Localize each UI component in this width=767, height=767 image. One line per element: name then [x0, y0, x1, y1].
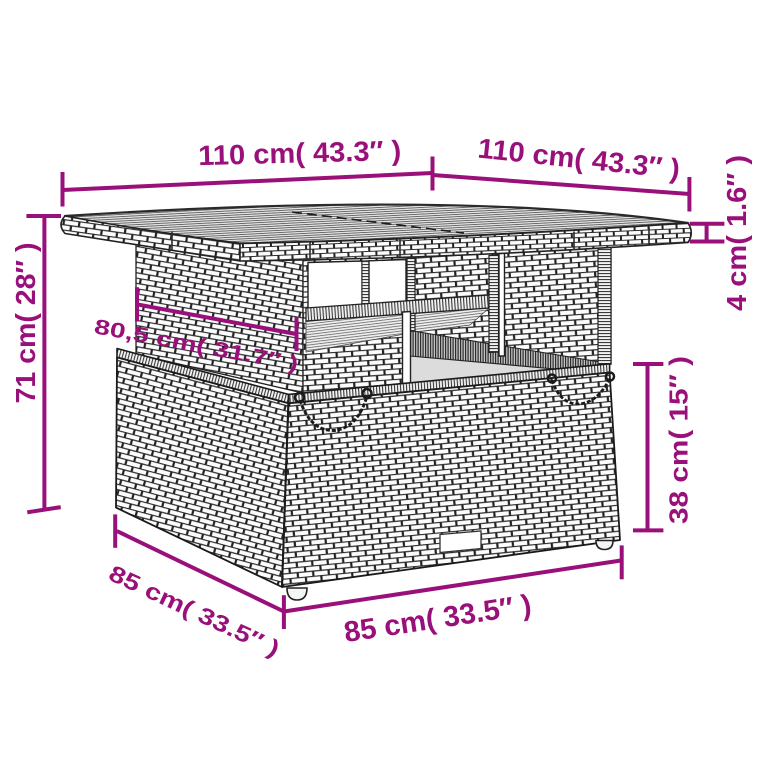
svg-text:38 cm( 15″ ): 38 cm( 15″ ) [664, 356, 694, 524]
svg-text:71 cm( 28″ ): 71 cm( 28″ ) [10, 243, 41, 404]
svg-text:4 cm( 1.6″ ): 4 cm( 1.6″ ) [721, 155, 752, 311]
svg-text:110 cm( 43.3″ ): 110 cm( 43.3″ ) [198, 135, 402, 171]
